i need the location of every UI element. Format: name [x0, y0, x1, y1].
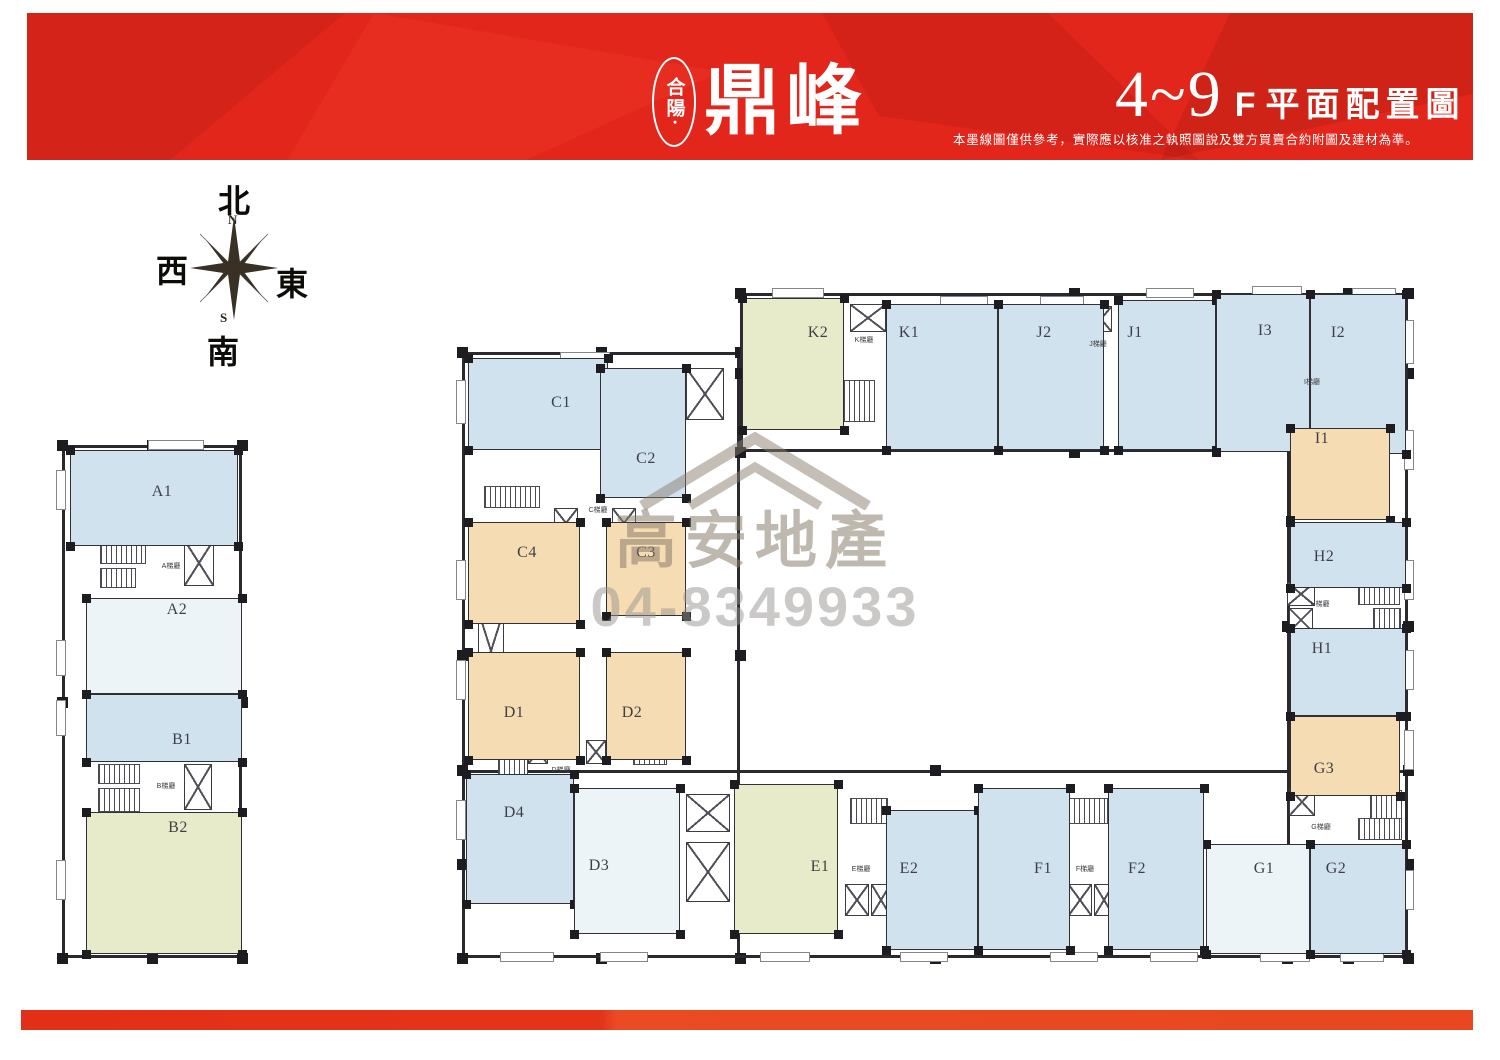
unit-label-a1: A1: [152, 483, 173, 501]
unit-g3: [1290, 716, 1400, 796]
column: [462, 900, 471, 909]
stair-lobby-label: D梯廳: [551, 765, 570, 775]
column: [1200, 946, 1209, 955]
column: [147, 953, 158, 964]
column: [840, 294, 849, 303]
column: [238, 690, 247, 699]
stair-lobby-label: J梯廳: [1089, 339, 1107, 349]
unit-label-h2: H2: [1314, 548, 1335, 566]
unit-label-c1: C1: [551, 394, 571, 412]
column: [464, 518, 473, 527]
column: [576, 620, 585, 629]
unit-b2: [86, 812, 242, 954]
column: [738, 426, 747, 435]
unit-label-e2: E2: [900, 860, 919, 878]
balcony: [1146, 288, 1194, 298]
column: [1286, 624, 1295, 633]
column: [1200, 784, 1209, 793]
unit-h2: [1290, 522, 1406, 588]
unit-c2: [600, 368, 686, 498]
column: [238, 808, 247, 817]
balcony: [56, 470, 66, 510]
column: [1402, 518, 1411, 527]
column: [238, 758, 247, 767]
unit-b1: [86, 694, 242, 762]
balcony: [1150, 952, 1198, 962]
column: [682, 612, 691, 621]
unit-label-b2: B2: [168, 819, 188, 837]
column: [1100, 300, 1109, 309]
column: [602, 648, 611, 657]
unit-label-a2: A2: [167, 601, 188, 619]
column: [682, 364, 691, 373]
unit-label-d2: D2: [622, 704, 643, 722]
column: [1212, 290, 1221, 299]
unit-label-k2: K2: [808, 324, 829, 342]
column: [1286, 792, 1295, 801]
unit-label-f1: F1: [1034, 860, 1052, 878]
elevator-shaft: [845, 884, 869, 916]
column: [1104, 784, 1113, 793]
unit-label-j1: J1: [1127, 324, 1142, 342]
unit-label-g2: G2: [1326, 860, 1347, 878]
column: [457, 953, 468, 964]
staircase: [1068, 798, 1108, 824]
column: [834, 930, 843, 939]
unit-label-d1: D1: [504, 704, 525, 722]
column: [840, 426, 849, 435]
balcony: [456, 800, 466, 840]
unit-label-c4: C4: [517, 544, 537, 562]
elevator-shaft: [686, 794, 730, 832]
column: [596, 364, 605, 373]
column: [1306, 840, 1315, 849]
unit-label-i1: I1: [1315, 430, 1329, 448]
unit-c3: [606, 522, 686, 616]
column: [576, 518, 585, 527]
unit-c1: [468, 358, 608, 450]
column: [464, 620, 473, 629]
column: [464, 648, 473, 657]
column: [882, 806, 891, 815]
floor-plan: A1A2B1B2C1C2C4C3D1D2D4D3K2K1J2J1I3I2I1H2…: [0, 0, 1500, 1060]
balcony: [760, 952, 810, 962]
balcony: [772, 288, 824, 298]
balcony: [148, 440, 204, 450]
balcony: [456, 380, 466, 424]
column: [238, 950, 247, 959]
staircase: [98, 788, 140, 812]
column: [1286, 518, 1295, 527]
unit-f1: [978, 788, 1070, 950]
column: [82, 808, 91, 817]
column: [1286, 424, 1295, 433]
column: [1104, 946, 1113, 955]
elevator-shaft: [686, 842, 730, 902]
column: [730, 780, 739, 789]
unit-k2: [742, 298, 844, 430]
unit-a2: [86, 598, 242, 694]
balcony: [56, 860, 66, 900]
column: [1306, 950, 1315, 959]
column: [602, 612, 611, 621]
column: [570, 784, 579, 793]
balcony: [456, 560, 466, 600]
elevator-shaft: [184, 764, 212, 810]
staircase: [484, 486, 540, 508]
staircase: [98, 764, 140, 784]
balcony: [500, 952, 554, 962]
column: [1306, 290, 1315, 299]
unit-e2: [886, 810, 978, 950]
unit-d4: [466, 774, 574, 904]
column: [682, 494, 691, 503]
stair-lobby-label: C梯廳: [588, 505, 607, 515]
column: [464, 446, 473, 455]
column: [682, 518, 691, 527]
column: [676, 784, 685, 793]
unit-label-i2: I2: [1331, 324, 1345, 342]
column: [66, 446, 75, 455]
column: [1114, 446, 1123, 455]
column: [974, 784, 983, 793]
column: [1396, 712, 1405, 721]
unit-label-j2: J2: [1036, 324, 1051, 342]
unit-label-k1: K1: [899, 324, 920, 342]
column: [1066, 946, 1075, 955]
elevator-shaft: [184, 540, 214, 586]
column: [676, 930, 685, 939]
column: [994, 446, 1003, 455]
column: [730, 930, 739, 939]
unit-f2: [1108, 788, 1204, 950]
balcony: [56, 640, 66, 676]
column: [462, 770, 471, 779]
column: [682, 756, 691, 765]
column: [994, 300, 1003, 309]
column: [66, 542, 75, 551]
staircase: [100, 568, 136, 588]
stair-lobby-label: G梯廳: [1311, 822, 1330, 832]
column: [604, 354, 613, 363]
unit-label-e1: E1: [811, 858, 830, 876]
unit-c4: [468, 522, 580, 624]
column: [1386, 424, 1395, 433]
column: [930, 765, 941, 776]
column: [1286, 712, 1295, 721]
unit-label-g3: G3: [1314, 760, 1335, 778]
stair-lobby-label: I梯廳: [1304, 377, 1320, 387]
column: [974, 946, 983, 955]
column: [238, 594, 247, 603]
column: [57, 953, 68, 964]
unit-i1: [1290, 428, 1390, 520]
unit-label-b1: B1: [172, 731, 192, 749]
column: [234, 542, 243, 551]
unit-label-h1: H1: [1312, 640, 1333, 658]
column: [570, 930, 579, 939]
unit-label-c2: C2: [636, 450, 656, 468]
unit-label-d3: D3: [589, 857, 610, 875]
column: [234, 446, 243, 455]
balcony: [600, 952, 648, 962]
column: [82, 690, 91, 699]
column: [576, 756, 585, 765]
column: [882, 300, 891, 309]
column: [602, 518, 611, 527]
column: [1402, 624, 1411, 633]
column: [1286, 584, 1295, 593]
balcony: [1404, 730, 1414, 770]
balcony: [56, 700, 66, 736]
column: [464, 354, 473, 363]
unit-g2: [1310, 844, 1406, 954]
column: [464, 756, 473, 765]
column: [82, 950, 91, 959]
column: [1402, 584, 1411, 593]
elevator-shaft: [686, 368, 724, 420]
unit-label-c3: C3: [636, 544, 656, 562]
column: [1396, 792, 1405, 801]
staircase: [1373, 608, 1401, 630]
column: [738, 294, 747, 303]
column: [1402, 950, 1411, 959]
column: [834, 780, 843, 789]
column: [596, 494, 605, 503]
flyer-page: 合陽· 鼎峰 4~9 F 平面配置圖 本墨線圖僅供參考，實際應以核准之執照圖說及…: [0, 0, 1500, 1060]
unit-label-g1: G1: [1254, 860, 1275, 878]
unit-label-d4: D4: [504, 804, 525, 822]
staircase: [1358, 818, 1402, 840]
stair-lobby-label: H梯廳: [1310, 599, 1329, 609]
column: [735, 650, 746, 661]
column: [1100, 446, 1109, 455]
column: [82, 594, 91, 603]
column: [570, 770, 579, 779]
unit-j1: [1118, 300, 1216, 450]
balcony: [456, 660, 466, 700]
column: [882, 446, 891, 455]
stair-lobby-label: B梯廳: [157, 781, 176, 791]
column: [602, 756, 611, 765]
stair-lobby-label: E梯廳: [852, 864, 871, 874]
column: [735, 447, 746, 458]
column: [1402, 290, 1411, 299]
elevator-shaft: [850, 304, 886, 332]
unit-label-i3: I3: [1258, 322, 1272, 340]
unit-h1: [1290, 628, 1406, 716]
column: [576, 648, 585, 657]
column: [1402, 840, 1411, 849]
elevator-shaft: [1068, 884, 1092, 916]
column: [1114, 296, 1123, 305]
column: [1212, 448, 1221, 457]
column: [682, 648, 691, 657]
column: [1402, 450, 1411, 459]
staircase: [843, 380, 875, 422]
column: [1066, 784, 1075, 793]
column: [882, 946, 891, 955]
column: [82, 758, 91, 767]
unit-label-f2: F2: [1128, 860, 1146, 878]
stair-lobby-label: F梯廳: [1076, 864, 1094, 874]
unit-d2: [606, 652, 686, 760]
footer-strip: [21, 1010, 1473, 1030]
balcony: [900, 952, 948, 962]
stair-lobby-label: K梯廳: [855, 335, 874, 345]
stair-lobby-label: A梯廳: [162, 561, 181, 571]
